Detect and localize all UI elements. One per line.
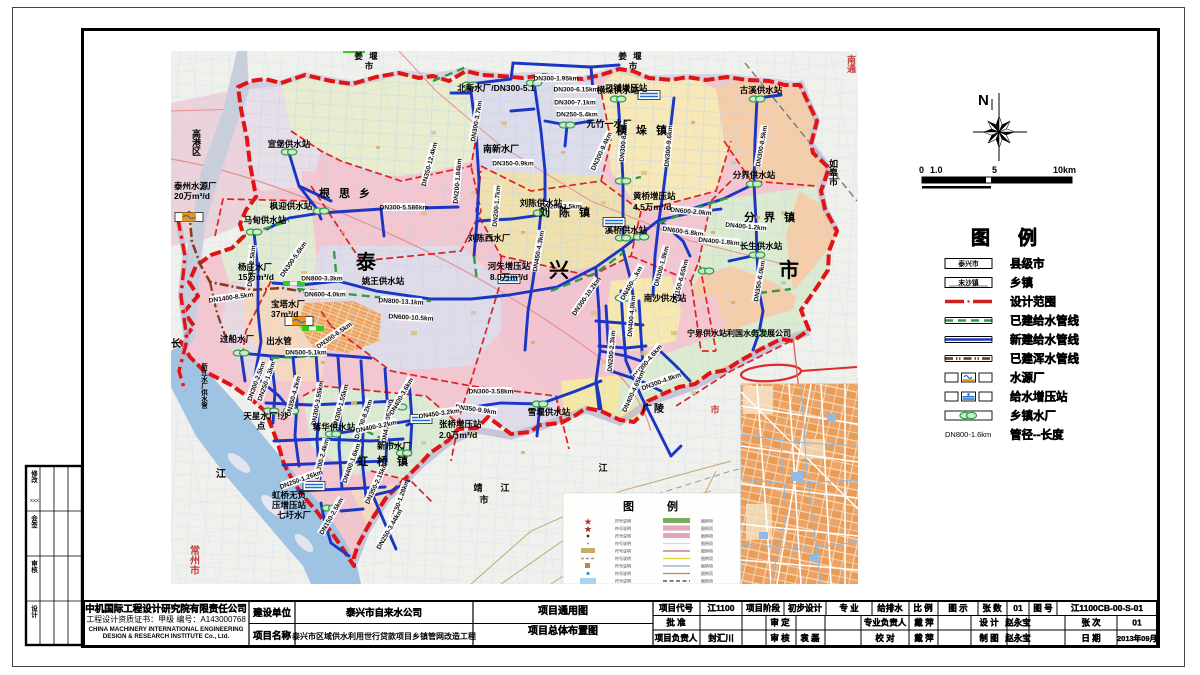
svg-text:新建给水管线: 新建给水管线 [1010,333,1079,347]
svg-text:设计范围: 设计范围 [1010,295,1056,309]
svg-text:专业负责人: 专业负责人 [864,618,907,628]
svg-text:市: 市 [365,61,374,71]
svg-text:分界供水站: 分界供水站 [733,170,776,180]
svg-text:袁 磊: 袁 磊 [799,633,820,643]
svg-text:批 准: 批 准 [666,618,686,628]
svg-text:项目名称: 项目名称 [253,630,292,642]
svg-text:DN800-1.6km: DN800-1.6km [945,430,991,439]
svg-text:图例项: 图例项 [701,533,713,539]
svg-text:已建给水管线: 已建给水管线 [1010,314,1079,328]
svg-text:图例项: 图例项 [701,570,713,576]
svg-text:图例项: 图例项 [701,578,713,584]
svg-text:1.0: 1.0 [930,165,943,175]
svg-text:张 次: 张 次 [1081,618,1101,628]
svg-text:初步设计: 初步设计 [788,603,823,613]
svg-text:设 计: 设 计 [979,618,999,628]
svg-text:高港区: 高港区 [191,128,202,156]
svg-text:图例项: 图例项 [701,555,713,561]
svg-text:8.0万m³/d: 8.0万m³/d [490,272,528,282]
svg-text:刘陈西水厂: 刘陈西水厂 [468,233,511,243]
svg-text:已建浑水管线: 已建浑水管线 [1010,352,1079,366]
svg-text:2013年09月: 2013年09月 [1117,633,1157,643]
svg-text:制 图: 制 图 [979,633,998,643]
svg-text:DN300-6.15km: DN300-6.15km [553,87,598,94]
svg-text:点: 点 [257,421,266,431]
svg-text:古溪供水站: 古溪供水站 [740,85,783,95]
svg-text:符号说明: 符号说明 [615,570,631,576]
svg-text:靖: 靖 [473,482,482,493]
svg-text:黄桥增压站: 黄桥增压站 [633,191,676,201]
svg-text:符号说明: 符号说明 [615,555,631,561]
svg-text:项目总体布置图: 项目总体布置图 [528,624,598,637]
svg-text:市: 市 [779,258,799,282]
svg-text:01: 01 [1013,603,1023,613]
svg-text:DN300-1.95km: DN300-1.95km [533,76,578,83]
svg-text:图 示: 图 示 [948,603,968,613]
svg-text:项目负责人: 项目负责人 [655,633,698,643]
svg-text:宁界供水站利国水务发展公司: 宁界供水站利国水务发展公司 [687,328,791,338]
svg-text:兴: 兴 [549,259,569,282]
svg-text:N: N [978,92,989,109]
svg-text:溪桥供水站: 溪桥供水站 [605,225,648,235]
svg-text:符号说明: 符号说明 [615,578,631,584]
svg-text:泰州水源厂: 泰州水源厂 [173,181,217,191]
svg-text:市: 市 [629,61,638,71]
svg-text:横垛供水站: 横垛供水站 [596,85,640,95]
svg-text:符号说明: 符号说明 [615,518,631,524]
svg-text:10km: 10km [1053,165,1076,175]
svg-text:长: 长 [171,337,182,350]
svg-text:张 数: 张 数 [982,603,1002,613]
svg-text:符号说明: 符号说明 [615,533,631,539]
svg-text:DN300-7.1km: DN300-7.1km [554,100,596,107]
svg-text:七圩水厂: 七圩水厂 [277,510,312,520]
svg-text:DN600-4.0km: DN600-4.0km [304,292,346,299]
svg-text:给排水: 给排水 [877,603,903,613]
svg-text:过船水厂: 过船水厂 [220,334,255,344]
svg-text:马甸供水站: 马甸供水站 [244,215,287,225]
svg-text:比 例: 比 例 [913,603,933,613]
svg-text:5: 5 [992,165,997,175]
svg-text:工程设计资质证书：甲级 编号：A143000768: 工程设计资质证书：甲级 编号：A143000768 [86,614,246,624]
svg-text:DN350-0.9km: DN350-0.9km [492,161,534,168]
svg-text:图例项: 图例项 [701,563,713,569]
svg-text:江1100: 江1100 [708,603,735,613]
svg-text:项目代号: 项目代号 [659,603,694,613]
svg-text:张桥增压站: 张桥增压站 [439,419,482,429]
svg-text:图例项: 图例项 [701,525,713,531]
svg-text:宝塔水厂: 宝塔水厂 [271,299,306,309]
svg-text:符号说明: 符号说明 [615,540,631,546]
svg-text:建设单位: 建设单位 [252,607,292,619]
svg-text:给水增压站: 给水增压站 [1010,390,1068,404]
svg-text:如皋市: 如皋市 [828,158,839,187]
svg-text:南新水厂: 南新水厂 [483,143,519,154]
svg-text:专 业: 专 业 [839,603,859,613]
svg-text:根 思 乡: 根 思 乡 [319,186,373,200]
svg-text:江: 江 [216,467,226,480]
svg-text:市: 市 [479,494,488,505]
svg-text:戴 萍: 戴 萍 [914,618,934,628]
svg-text:4.5万m³/d: 4.5万m³/d [633,202,671,212]
svg-text:刘 陈 镇: 刘 陈 镇 [539,205,593,219]
svg-text:虹桥无负: 虹桥无负 [272,490,307,500]
svg-text:新市水厂: 新市水厂 [377,441,412,451]
svg-text:日 期: 日 期 [1081,633,1101,643]
svg-text:DESIGN & RESEARCH INSTITUTE Co: DESIGN & RESEARCH INSTITUTE Co., Ltd. [103,633,230,640]
svg-text:泰兴市自来水公司: 泰兴市自来水公司 [345,607,422,619]
svg-text:15万m³/d: 15万m³/d [238,272,274,282]
svg-text:泰兴市: 泰兴市 [957,259,979,268]
svg-text:DN500-5.1km: DN500-5.1km [285,350,327,357]
svg-text:20万m³/d: 20万m³/d [174,191,210,201]
svg-text:01: 01 [1132,618,1142,628]
svg-text:2.0万m³/d: 2.0万m³/d [439,430,477,440]
svg-text:虹 桥 镇: 虹 桥 镇 [357,454,411,468]
svg-text:图例项: 图例项 [701,518,713,524]
svg-text:长生供水站: 长生供水站 [740,241,783,251]
svg-text:泰兴市区域供水利用世行贷款项目乡镇管网改造工程: 泰兴市区域供水利用世行贷款项目乡镇管网改造工程 [291,631,476,641]
svg-text:DN300-5.586km: DN300-5.586km [380,205,429,212]
svg-text:符号说明: 符号说明 [615,563,631,569]
svg-text:37m³/d: 37m³/d [271,309,298,319]
svg-text:河失增压站: 河失增压站 [488,261,531,271]
svg-text:CHINA MACHINERY INTERNATIONAL: CHINA MACHINERY INTERNATIONAL ENGINEERIN… [89,626,244,633]
svg-text:项目通用图: 项目通用图 [538,605,588,617]
svg-text:水源厂: 水源厂 [1010,371,1045,385]
svg-text:DN250-5.4km: DN250-5.4km [556,112,598,119]
svg-text:杨庄水厂: 杨庄水厂 [238,262,273,272]
svg-text:图例: 图例 [971,226,1065,249]
svg-text:出水管: 出水管 [266,336,292,346]
svg-text:蒋华供水站: 蒋华供水站 [313,422,356,432]
svg-text:XXX: XXX [30,498,39,503]
svg-text:末沙镇: 末沙镇 [958,278,979,287]
svg-text:图例: 图例 [623,499,711,513]
svg-text:泰: 泰 [355,250,377,274]
svg-text:压增压站: 压增压站 [272,500,307,510]
svg-text:江: 江 [598,462,607,473]
svg-text:中机国际工程设计研究院有限责任公司: 中机国际工程设计研究院有限责任公司 [85,603,247,615]
svg-text:赵永宝: 赵永宝 [1004,633,1031,643]
svg-text:姜 堰: 姜 堰 [618,51,643,61]
svg-text:宣堡供水站: 宣堡供水站 [268,139,311,149]
svg-text:南通: 南通 [846,54,856,74]
svg-text:封汇川: 封汇川 [708,633,734,643]
svg-text:审 核: 审 核 [770,633,790,643]
svg-text:DN800-3.3km: DN800-3.3km [301,276,343,283]
svg-text:市: 市 [710,404,719,415]
svg-text:北新水厂/DN300-5.1: 北新水厂/DN300-5.1 [457,83,535,93]
svg-text:姚王供水站: 姚王供水站 [361,276,405,286]
svg-text:图 号: 图 号 [1033,603,1053,613]
svg-text:符号说明: 符号说明 [615,525,631,531]
svg-text:图例项: 图例项 [701,548,713,554]
svg-text:符号说明: 符号说明 [615,548,631,554]
svg-text:江: 江 [500,482,509,493]
svg-text:DN300-3.58km: DN300-3.58km [468,389,513,396]
svg-text:姜 堰: 姜 堰 [354,51,379,61]
svg-text:县级市: 县级市 [1010,257,1045,271]
svg-text:戴 萍: 戴 萍 [914,633,934,643]
svg-text:乡镇: 乡镇 [1010,276,1033,290]
svg-text:审 定: 审 定 [770,618,790,628]
svg-text:分 界 镇: 分 界 镇 [744,210,798,224]
svg-text:赵永宝: 赵永宝 [1004,618,1031,628]
svg-text:0: 0 [919,165,924,175]
svg-text:天星水厂!沙: 天星水厂!沙 [243,411,289,421]
svg-text:乡镇水厂: 乡镇水厂 [1010,409,1056,423]
svg-text:雪堰供水站: 雪堰供水站 [528,407,571,417]
svg-text:南沙供水站: 南沙供水站 [644,293,687,303]
svg-text:横 垛 镇: 横 垛 镇 [616,123,670,137]
svg-text:校 对: 校 对 [875,633,895,643]
svg-text:项目阶段: 项目阶段 [746,603,781,613]
svg-text:枫迎供水站: 枫迎供水站 [270,201,313,211]
svg-text:江1100CB-00-S-01: 江1100CB-00-S-01 [1071,603,1144,613]
svg-text:图例项: 图例项 [701,540,713,546]
svg-text:广陵: 广陵 [642,402,666,415]
svg-text:管径--长度: 管径--长度 [1010,428,1064,442]
